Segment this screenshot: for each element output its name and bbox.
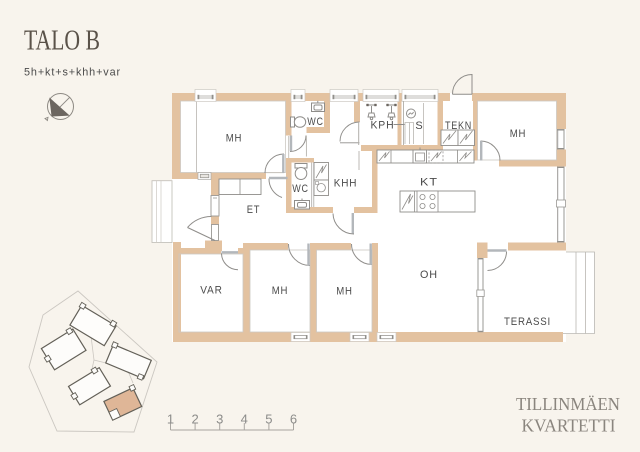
- svg-text:KT: KT: [420, 177, 438, 189]
- svg-text:5: 5: [265, 412, 272, 427]
- svg-text:MH: MH: [226, 133, 243, 145]
- svg-text:KPH: KPH: [371, 120, 395, 132]
- svg-text:KVARTETTI: KVARTETTI: [522, 416, 616, 436]
- svg-text:6: 6: [290, 412, 297, 427]
- svg-text:S: S: [415, 120, 423, 132]
- svg-text:TALO B: TALO B: [24, 26, 100, 57]
- svg-text:2: 2: [191, 412, 198, 427]
- svg-text:KHH: KHH: [334, 178, 358, 190]
- svg-text:5h+kt+s+khh+var: 5h+kt+s+khh+var: [24, 67, 121, 79]
- svg-text:WC: WC: [307, 116, 324, 128]
- svg-text:ET: ET: [247, 204, 261, 216]
- svg-text:TILLINMÄEN: TILLINMÄEN: [516, 394, 620, 414]
- svg-text:1: 1: [167, 412, 174, 427]
- svg-text:4: 4: [241, 412, 248, 427]
- svg-text:3: 3: [216, 412, 223, 427]
- svg-text:MH: MH: [510, 128, 527, 140]
- svg-text:MH: MH: [336, 286, 353, 298]
- svg-text:TERASSI: TERASSI: [504, 316, 551, 328]
- svg-text:VAR: VAR: [200, 285, 223, 297]
- svg-text:OH: OH: [420, 269, 438, 281]
- svg-text:WC: WC: [292, 183, 309, 195]
- svg-text:MH: MH: [272, 285, 289, 297]
- svg-text:TEKN: TEKN: [445, 120, 472, 132]
